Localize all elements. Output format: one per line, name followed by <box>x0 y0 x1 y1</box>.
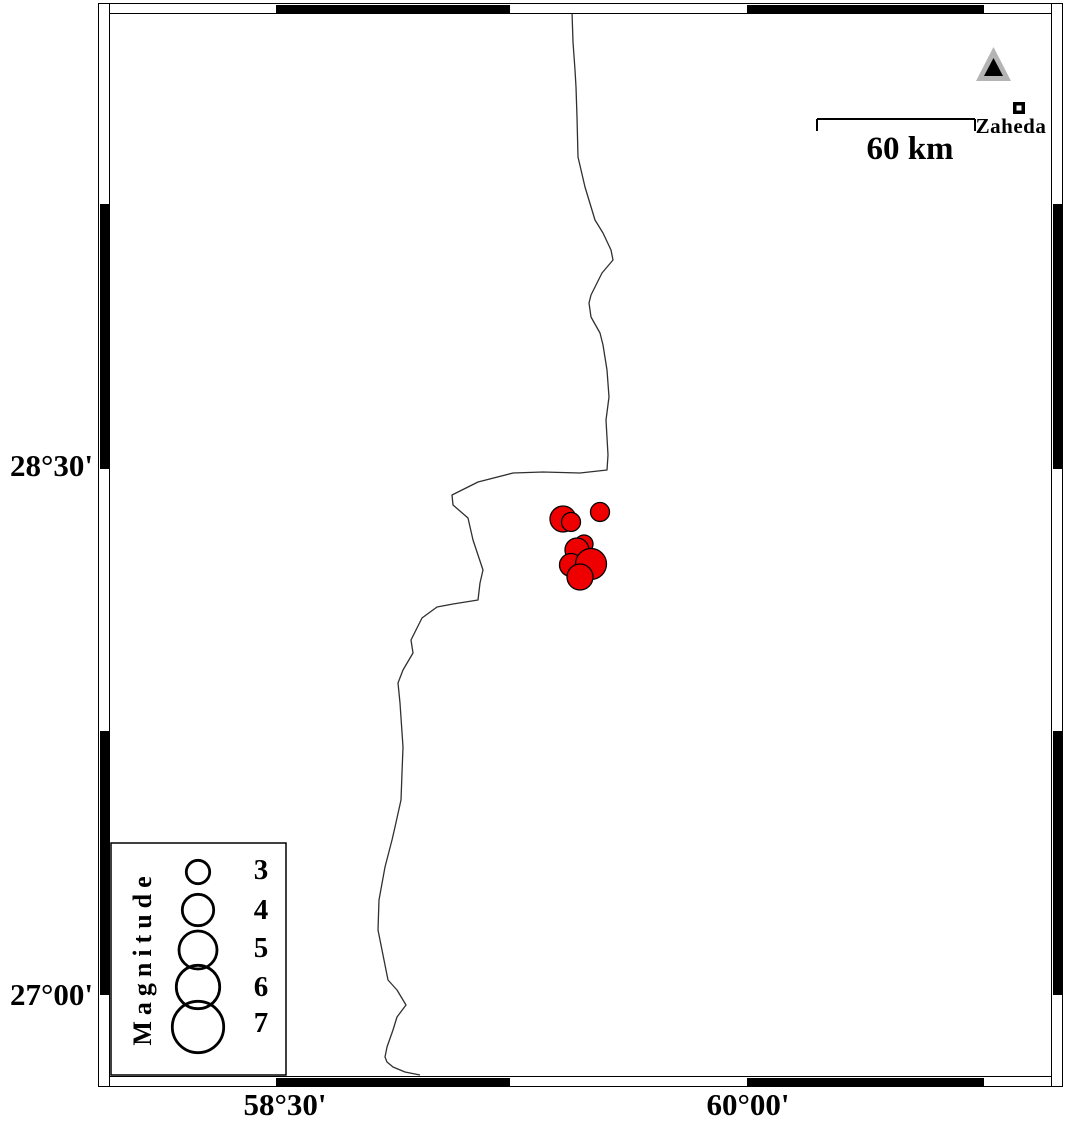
legend-magnitude-7: 7 <box>239 1005 283 1041</box>
legend-magnitude-4: 4 <box>239 892 283 928</box>
legend-title-magnitude: Magnitude <box>128 848 158 1068</box>
epicenter-circle <box>591 503 610 522</box>
legend-magnitude-3: 3 <box>239 852 283 888</box>
map-canvas <box>0 0 1066 1127</box>
epicenter-circle <box>567 564 593 590</box>
legend-magnitude-5: 5 <box>239 930 283 966</box>
frame-segment <box>100 731 109 995</box>
frame-segment <box>1053 204 1062 469</box>
frame-segment <box>100 204 109 469</box>
city-label-zaheda: Zaheda <box>951 114 1066 139</box>
longitude-label-60-00: 60°00' <box>678 1086 818 1124</box>
frame-segment <box>276 1078 510 1086</box>
frame-segment <box>747 5 984 13</box>
longitude-label-58-30: 58°30' <box>215 1086 355 1124</box>
latitude-label-27-00: 27°00' <box>0 976 93 1014</box>
frame-segment <box>747 1078 984 1086</box>
frame-segment <box>1053 731 1062 995</box>
epicenter-circle <box>562 513 581 532</box>
city-square-marker-inner <box>1017 106 1022 111</box>
seismicity-map-figure: 28°30' 27°00' 58°30' 60°00' 60 km Zaheda… <box>0 0 1066 1127</box>
legend-magnitude-6: 6 <box>239 969 283 1005</box>
frame-segment <box>276 5 510 13</box>
latitude-label-28-30: 28°30' <box>0 447 93 485</box>
